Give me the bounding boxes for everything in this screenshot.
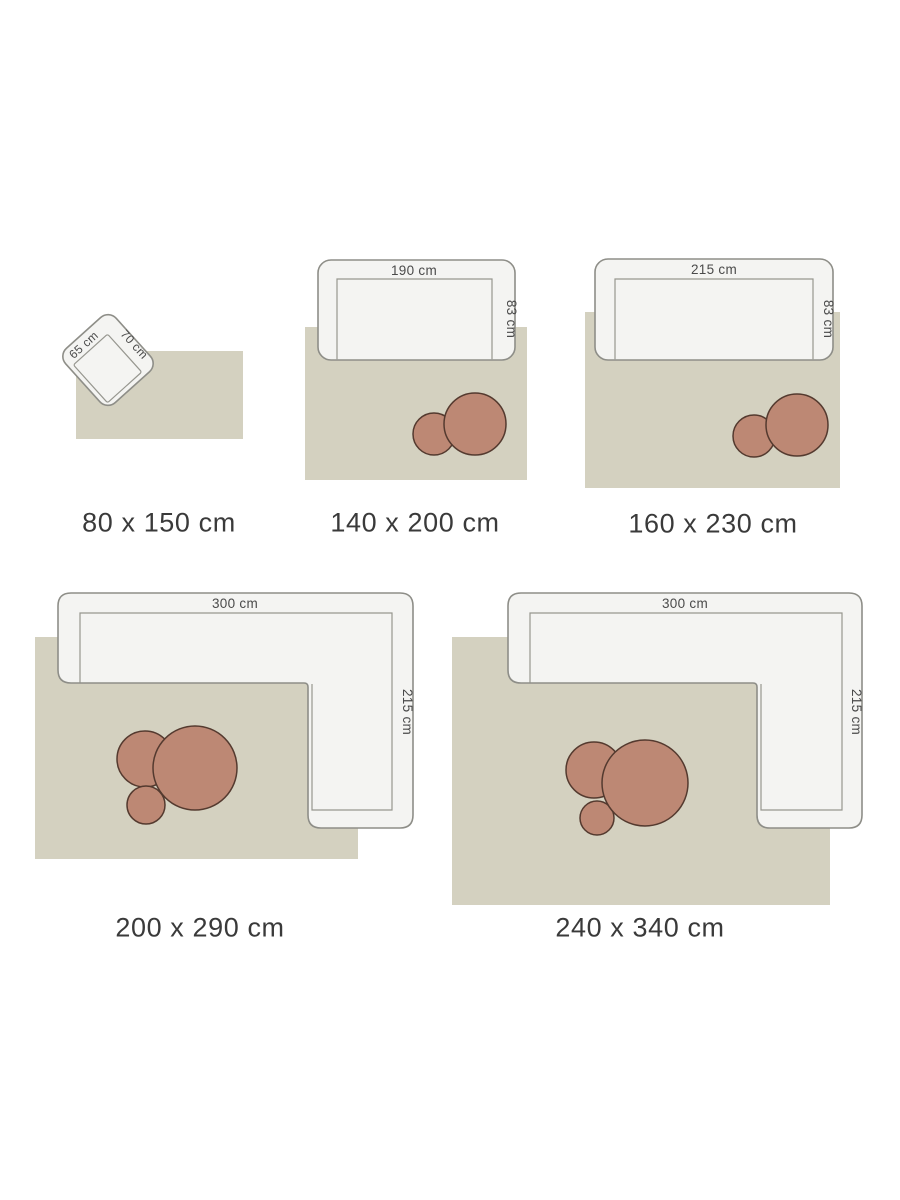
size-label-80x150: 80 x 150 cm: [82, 508, 236, 539]
sofa-width-label: 190 cm: [391, 263, 437, 278]
sofa-depth-label: 83 cm: [821, 300, 836, 338]
coffee-table-small: [127, 786, 165, 824]
corner-sofa-depth-label: 215 cm: [849, 689, 864, 735]
corner-sofa-width-label: 300 cm: [212, 596, 258, 611]
size-label-160x230: 160 x 230 cm: [628, 509, 797, 540]
figure-rug-200x290: 300 cm 215 cm: [35, 593, 415, 859]
size-label-200x290: 200 x 290 cm: [115, 913, 284, 944]
corner-sofa-depth-label: 215 cm: [400, 689, 415, 735]
size-label-240x340: 240 x 340 cm: [555, 913, 724, 944]
coffee-table-large: [153, 726, 237, 810]
coffee-table-large: [766, 394, 828, 456]
rug-size-guide-diagram: 65 cm 70 cm 190 cm 83 cm 215 cm 83 cm: [0, 0, 900, 1200]
rug-size-guide: 65 cm 70 cm 190 cm 83 cm 215 cm 83 cm: [0, 0, 900, 1200]
coffee-table-large: [444, 393, 506, 455]
figure-rug-160x230: 215 cm 83 cm: [585, 259, 840, 488]
sofa-depth-label: 83 cm: [504, 300, 519, 338]
figure-rug-140x200: 190 cm 83 cm: [305, 260, 527, 480]
sofa-width-label: 215 cm: [691, 262, 737, 277]
coffee-table-large: [602, 740, 688, 826]
figure-rug-80x150: 65 cm 70 cm: [58, 308, 243, 439]
size-label-140x200: 140 x 200 cm: [330, 508, 499, 539]
corner-sofa-width-label: 300 cm: [662, 596, 708, 611]
figure-rug-240x340: 300 cm 215 cm: [452, 593, 864, 905]
